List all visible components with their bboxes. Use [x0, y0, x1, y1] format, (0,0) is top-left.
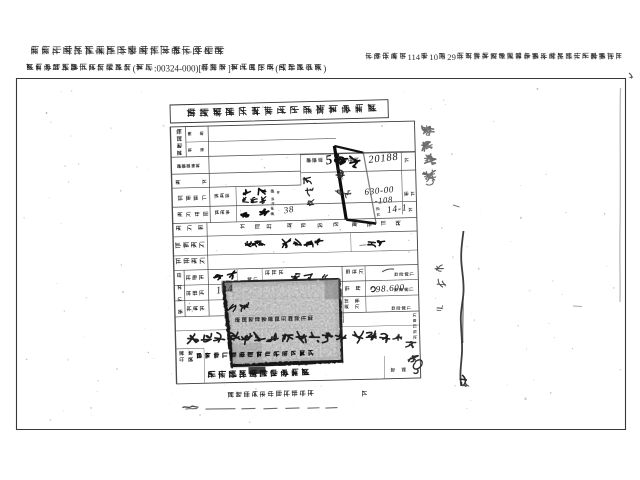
svg-text:(: (	[133, 63, 136, 73]
svg-text:29: 29	[447, 52, 456, 62]
svg-text:-108: -108	[374, 194, 393, 206]
svg-text:]: ]	[228, 63, 231, 73]
svg-text::00324-000)[: :00324-000)[	[154, 63, 202, 73]
svg-text:(: (	[275, 63, 278, 73]
svg-text:114: 114	[408, 52, 421, 62]
svg-text:10: 10	[429, 52, 438, 62]
svg-text:38: 38	[282, 204, 295, 216]
svg-text:): )	[323, 63, 326, 73]
svg-text:134: 134	[215, 283, 234, 296]
